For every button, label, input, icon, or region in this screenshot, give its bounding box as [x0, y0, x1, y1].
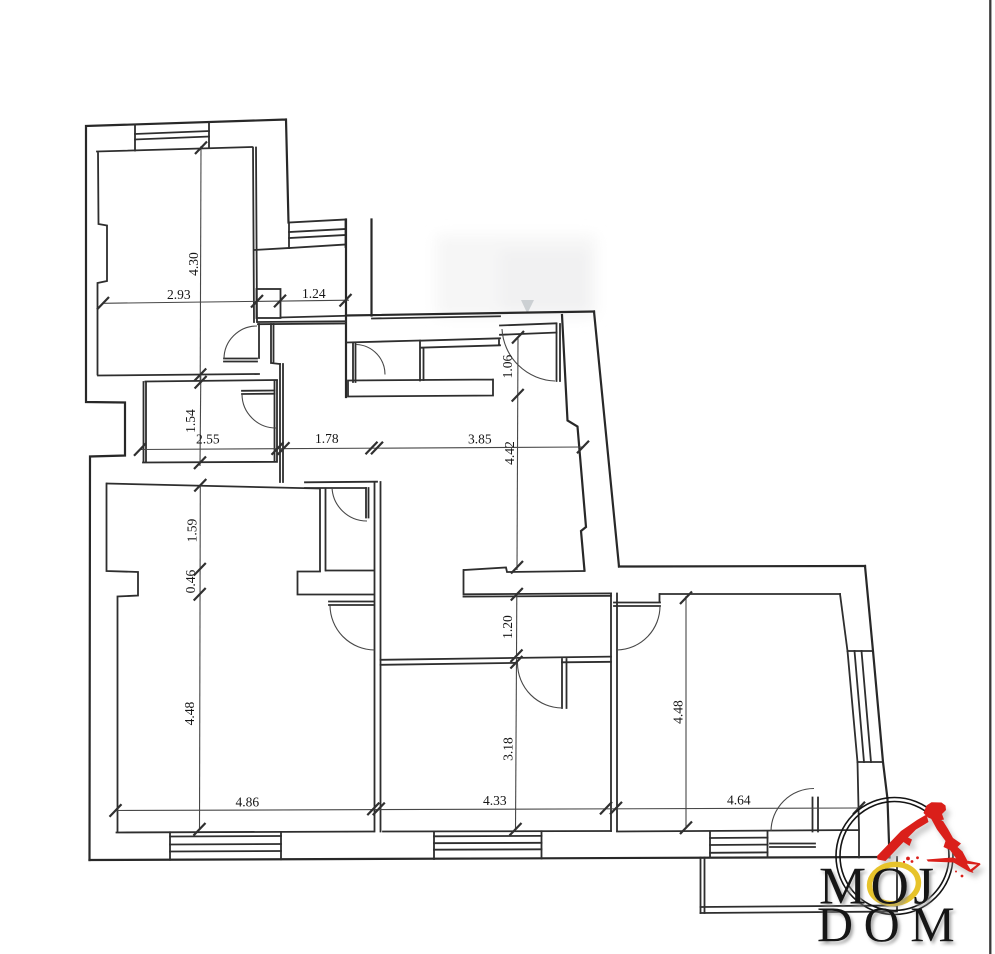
svg-text:1.59: 1.59	[185, 518, 200, 542]
svg-text:1.24: 1.24	[302, 286, 326, 301]
svg-text:4.86: 4.86	[236, 795, 260, 810]
svg-text:4.33: 4.33	[483, 793, 507, 808]
svg-text:4.48: 4.48	[182, 701, 197, 725]
svg-text:1.06: 1.06	[500, 354, 515, 378]
svg-text:DOM: DOM	[817, 896, 965, 952]
svg-text:2.93: 2.93	[167, 287, 191, 302]
svg-text:4.64: 4.64	[727, 793, 751, 808]
svg-text:1.78: 1.78	[315, 431, 339, 446]
svg-text:1.54: 1.54	[183, 409, 198, 433]
svg-text:3.85: 3.85	[468, 432, 492, 447]
svg-text:2.55: 2.55	[196, 432, 220, 447]
svg-text:0.46: 0.46	[183, 569, 198, 593]
svg-text:4.48: 4.48	[671, 700, 686, 724]
svg-text:4.30: 4.30	[186, 252, 201, 276]
svg-text:4.42: 4.42	[502, 441, 517, 465]
svg-text:3.18: 3.18	[501, 737, 516, 761]
svg-text:1.20: 1.20	[500, 615, 515, 639]
